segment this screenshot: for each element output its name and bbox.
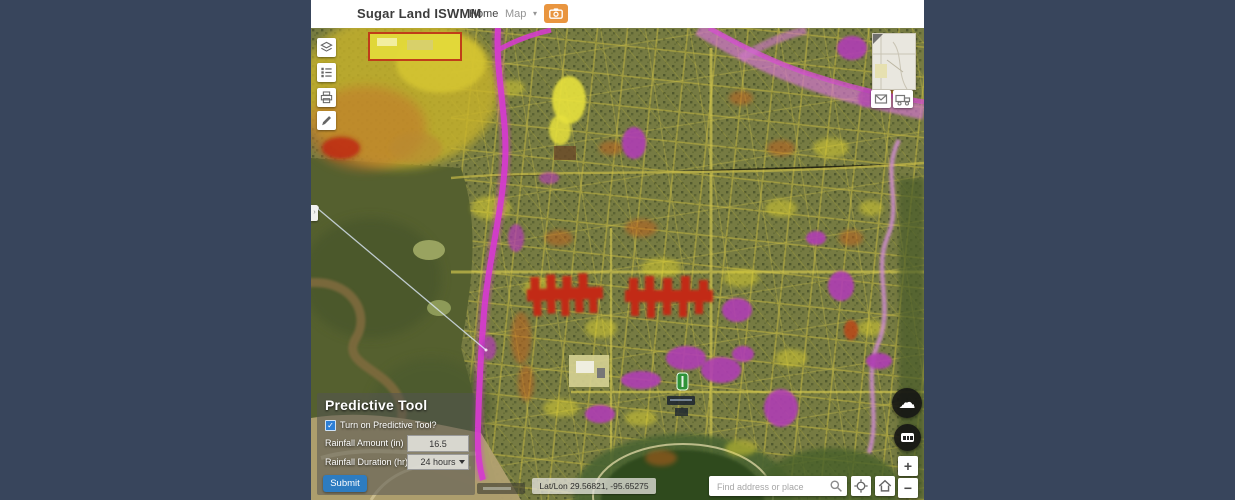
predictive-toggle-checkbox[interactable]: ✓ [325,420,336,431]
predictive-toggle-label: Turn on Predictive Tool? [340,420,480,430]
address-search [709,476,847,496]
predictive-tool-panel: Predictive Tool ✓ Turn on Predictive Too… [317,393,475,495]
pencil-icon [319,113,334,128]
latlon-readout: Lat/Lon 29.56821, -95.65275 [532,478,656,494]
cloud-icon: ☁ [899,393,916,412]
app-title: Sugar Land ISWMM [357,0,482,28]
video-frames-icon [901,433,914,442]
submit-button[interactable]: Submit [323,475,367,492]
zoom-in-button[interactable]: + [898,456,918,476]
crosshair-icon [853,478,869,494]
camera-button[interactable] [544,4,568,23]
camera-icon [549,8,563,19]
nav-map-menu[interactable]: Map [505,0,526,28]
rainfall-amount-label: Rainfall Amount (in) [325,438,404,448]
weather-cloud-button[interactable]: ☁ [892,388,922,418]
zoom-out-button[interactable]: − [898,478,918,498]
app-window: Sugar Land ISWMM Home Map ▾ [311,0,924,500]
panel-title: Predictive Tool [325,397,427,413]
home-icon [877,478,893,494]
rainfall-duration-value: 24 hours [420,457,455,467]
print-button[interactable] [317,88,336,107]
chevron-down-icon[interactable]: ▾ [533,0,537,28]
layers-button[interactable] [317,38,336,57]
locate-button[interactable] [851,476,871,496]
home-extent-button[interactable] [875,476,895,496]
app-header: Sugar Land ISWMM Home Map ▾ [311,0,924,29]
nav-home[interactable]: Home [469,0,498,28]
draw-button[interactable] [317,111,336,130]
rainfall-duration-select[interactable]: 24 hours [407,454,469,470]
overview-expand-icon[interactable] [873,34,883,44]
map-canvas[interactable]: › [311,28,924,500]
search-input[interactable] [715,476,825,498]
legend-button[interactable] [317,63,336,82]
rainfall-amount-input[interactable] [407,435,469,452]
directions-button[interactable] [893,90,913,108]
media-capture-button[interactable] [894,424,921,451]
layers-icon [319,40,334,55]
street-label [477,483,525,494]
rainfall-duration-label: Rainfall Duration (hr) [325,457,408,467]
print-icon [319,90,334,105]
envelope-icon [872,91,890,107]
side-panel-tab[interactable]: › [311,205,318,221]
truck-icon [894,91,912,107]
share-button[interactable] [871,90,891,108]
legend-list-icon [319,65,334,80]
search-icon[interactable] [829,479,843,493]
overview-map[interactable] [872,33,916,90]
chevron-down-icon [459,460,465,464]
